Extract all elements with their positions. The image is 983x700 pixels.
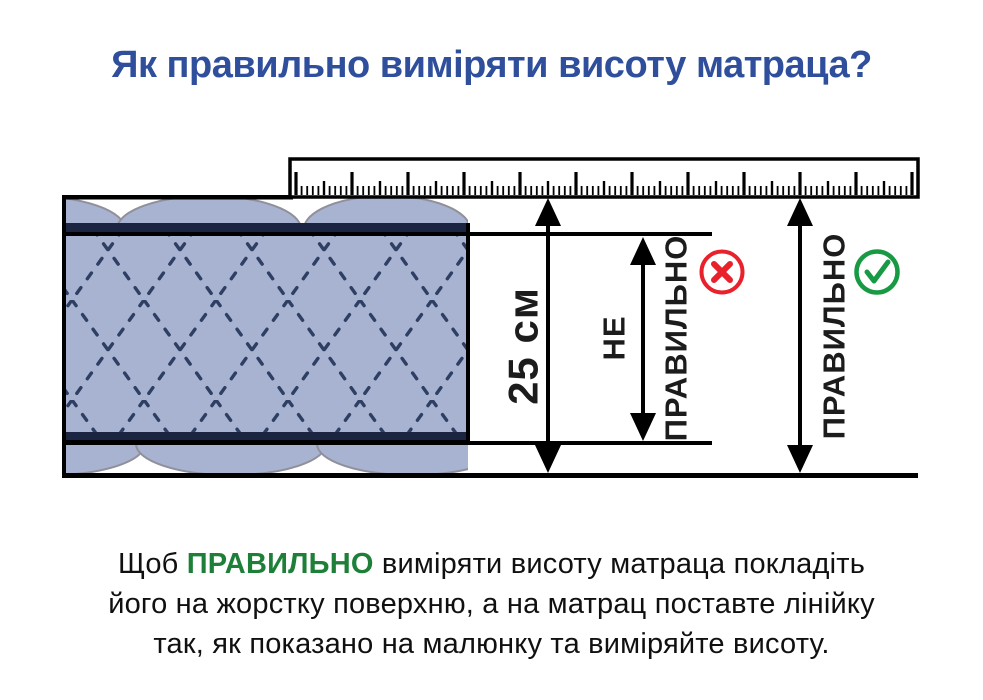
ruler [290, 159, 918, 197]
x-circle-icon [702, 252, 743, 293]
footer-line-1: Щоб ПРАВИЛЬНО виміряти висоту матраца по… [0, 544, 983, 584]
footer-line-2: його на жорстку поверхню, а на матрац по… [0, 584, 983, 624]
correct-measure-arrow [787, 198, 813, 473]
wrong-label-line1: НЕ [597, 315, 632, 360]
mattress-core [62, 196, 470, 477]
quilt-pattern [65, 236, 468, 432]
correct-label: ПРАВИЛЬНО [817, 233, 852, 440]
floor-line [62, 473, 918, 478]
footer-line-3: так, як показано на малюнку та виміряйте… [0, 624, 983, 664]
check-circle-icon [857, 252, 898, 293]
mattress-height-infographic: Як правильно виміряти висоту матраца? [0, 0, 983, 700]
footer-highlight: ПРАВИЛЬНО [187, 548, 374, 580]
height-label: 25 см [500, 287, 547, 405]
top-surface-line [62, 195, 293, 200]
footer-text: Щоб ПРАВИЛЬНО виміряти висоту матраца по… [0, 544, 983, 664]
wrong-measure-arrow [630, 237, 656, 441]
wrong-label-line2: ПРАВИЛЬНО [659, 235, 694, 442]
